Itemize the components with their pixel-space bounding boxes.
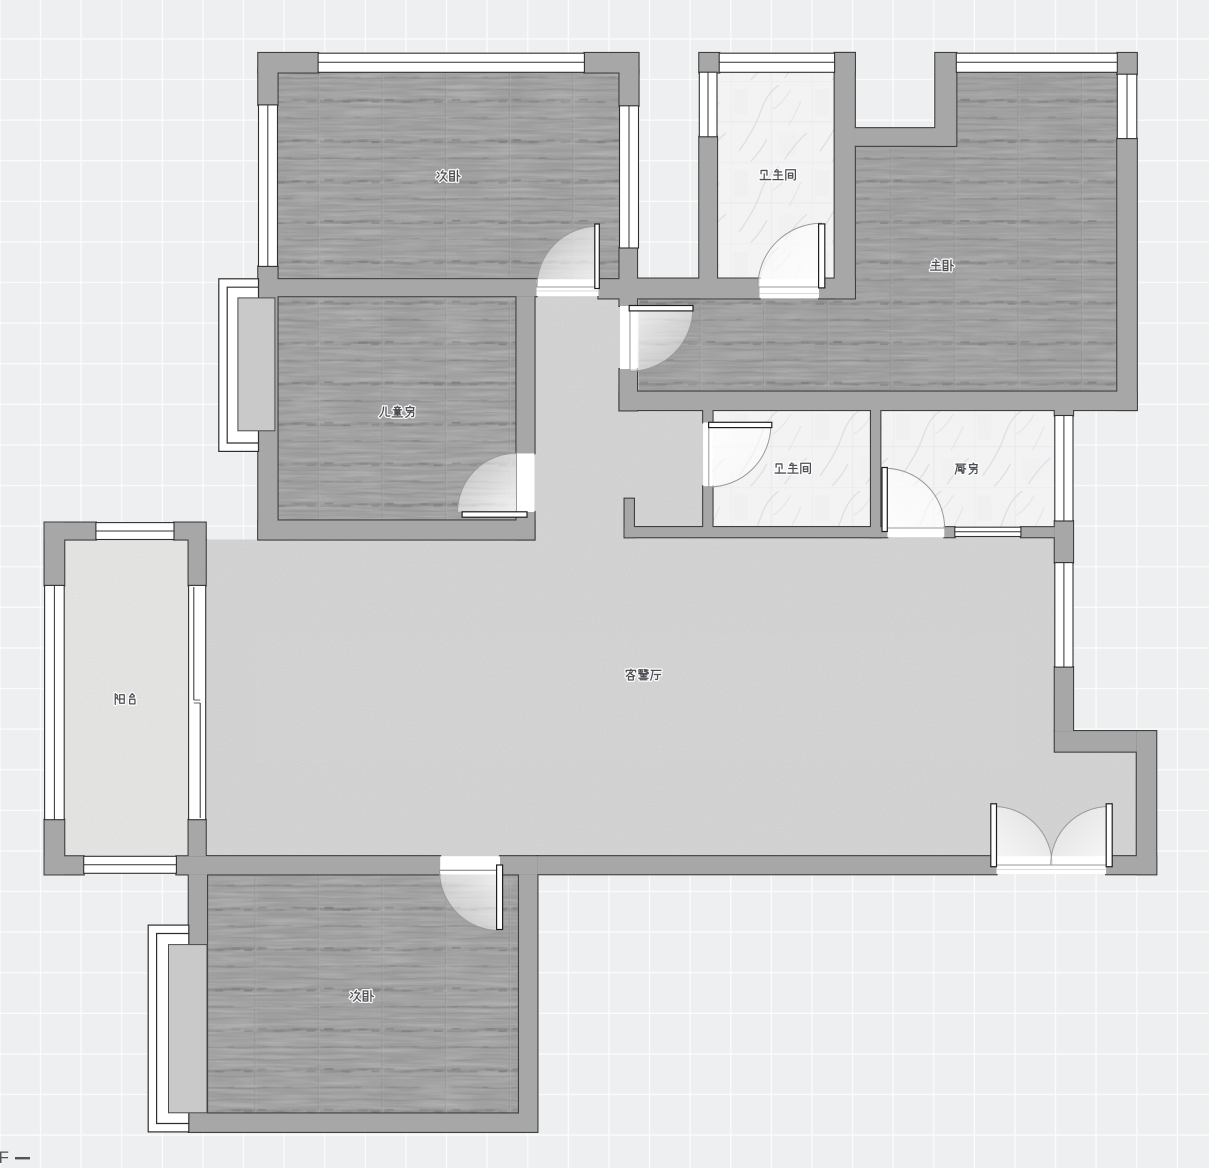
svg-text:1F: 1F <box>0 1148 9 1167</box>
